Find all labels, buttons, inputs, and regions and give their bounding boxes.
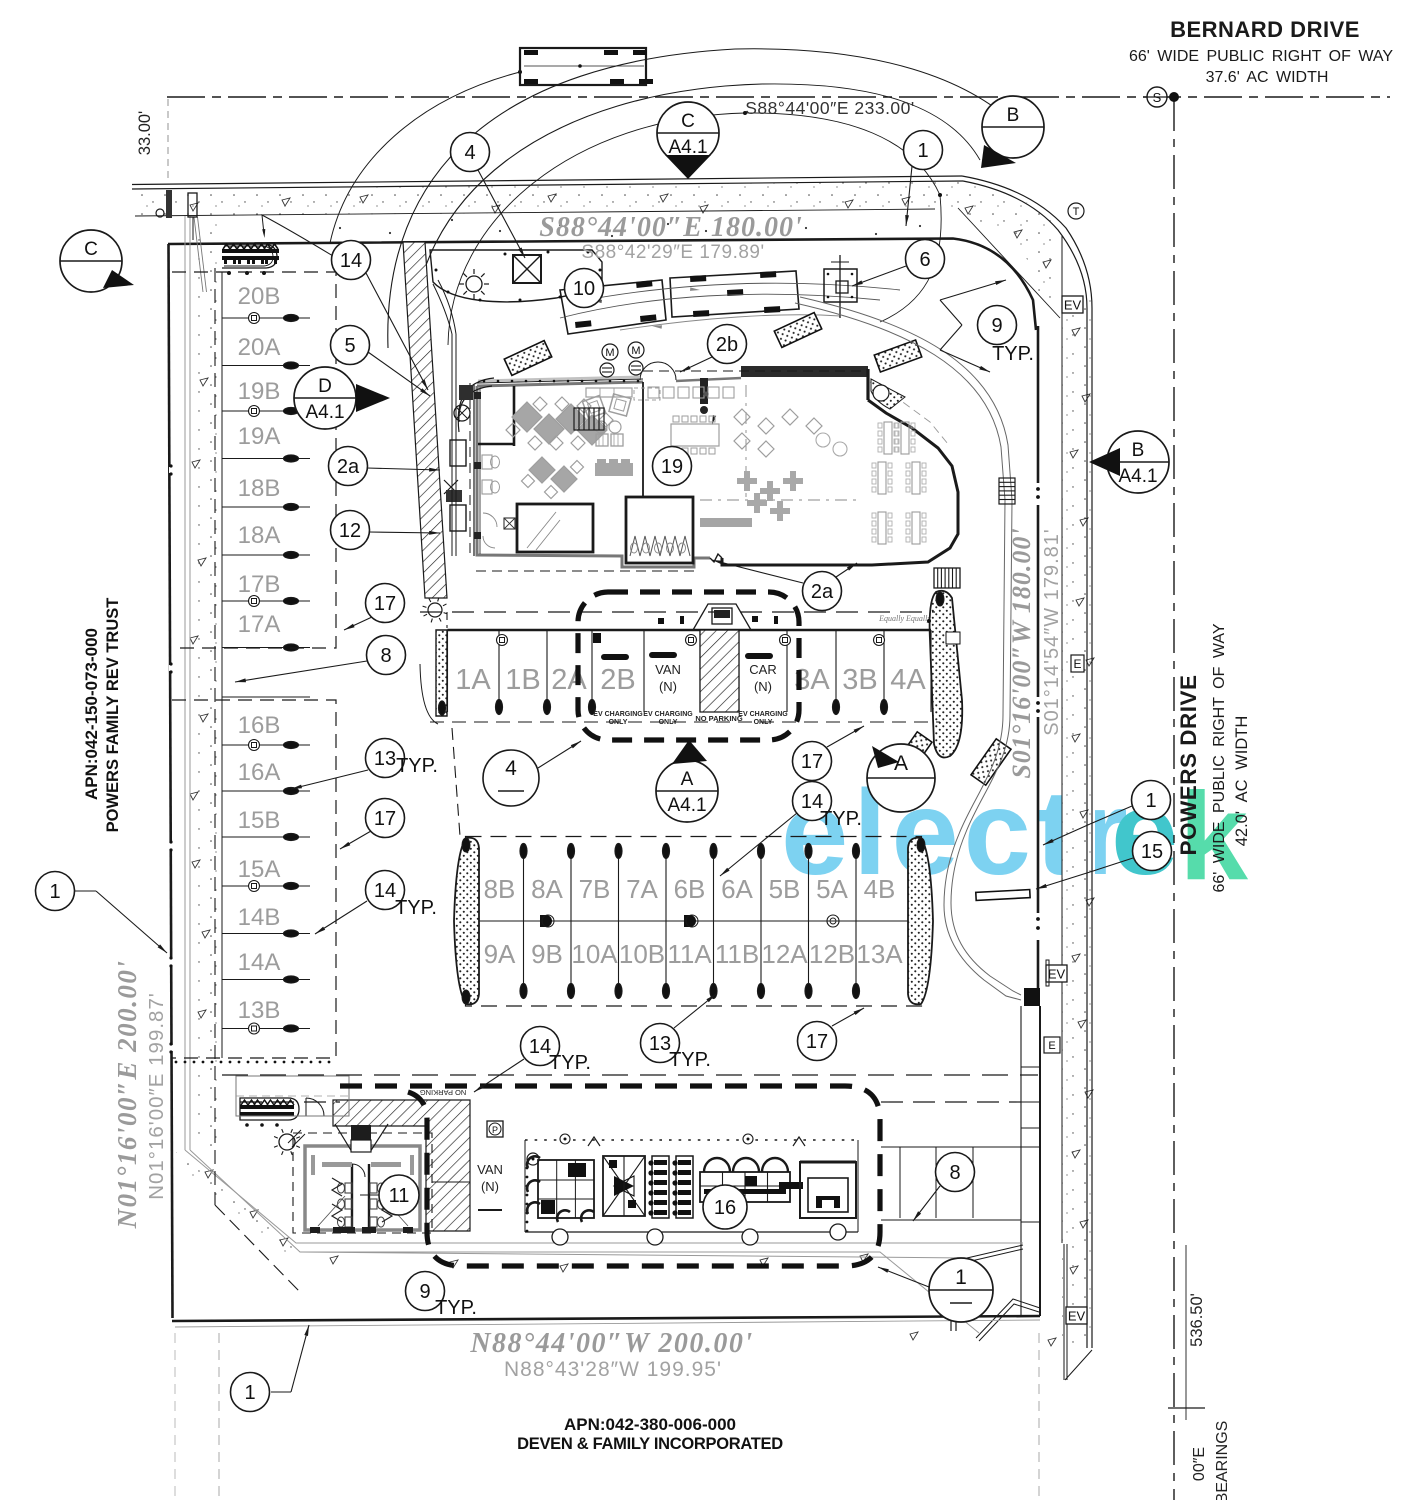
svg-text:14: 14 [374, 880, 396, 902]
svg-text:EV CHARGING: EV CHARGING [738, 711, 788, 718]
svg-text:13: 13 [649, 1033, 671, 1055]
svg-text:EV: EV [1048, 967, 1066, 982]
svg-text:10B: 10B [619, 939, 665, 969]
svg-text:TYP.: TYP. [435, 1297, 477, 1319]
svg-text:18A: 18A [238, 522, 281, 549]
svg-text:N01°16'00″E 200.00': N01°16'00″E 200.00' [112, 960, 142, 1230]
svg-text:TYP.: TYP. [820, 808, 862, 830]
svg-text:11: 11 [389, 1185, 410, 1207]
svg-text:1: 1 [955, 1266, 967, 1289]
svg-text:16: 16 [714, 1197, 736, 1219]
svg-text:13: 13 [374, 748, 396, 770]
svg-text:TYP.: TYP. [396, 755, 438, 777]
svg-text:5A: 5A [816, 874, 848, 904]
svg-text:6B: 6B [674, 874, 706, 904]
svg-text:APN:042-380-006-000: APN:042-380-006-000 [564, 1415, 736, 1434]
svg-text:10A: 10A [571, 939, 618, 969]
svg-text:NO PARKING: NO PARKING [695, 714, 743, 723]
svg-text:14A: 14A [238, 949, 281, 976]
svg-text:13A: 13A [856, 939, 903, 969]
svg-text:18B: 18B [238, 475, 281, 502]
svg-text:DEVEN & FAMILY INCORPORATED: DEVEN & FAMILY INCORPORATED [517, 1435, 783, 1453]
svg-text:T: T [1073, 206, 1080, 218]
svg-text:15: 15 [1141, 841, 1163, 863]
svg-text:CAR: CAR [749, 662, 776, 677]
svg-text:10: 10 [573, 278, 595, 300]
svg-text:(N): (N) [659, 679, 677, 694]
svg-text:8B: 8B [484, 874, 516, 904]
svg-text:A: A [681, 769, 694, 790]
svg-text:536.50': 536.50' [1188, 1293, 1206, 1347]
svg-text:1A: 1A [455, 664, 491, 696]
svg-text:1: 1 [244, 1382, 255, 1404]
svg-text:33.00': 33.00' [136, 111, 154, 155]
svg-text:TYP.: TYP. [395, 897, 437, 919]
svg-text:EV CHARGING: EV CHARGING [593, 711, 643, 718]
svg-text:14B: 14B [238, 904, 281, 931]
svg-text:13B: 13B [238, 997, 281, 1024]
svg-text:12: 12 [339, 520, 361, 542]
svg-text:8A: 8A [531, 874, 563, 904]
svg-text:4: 4 [464, 142, 475, 164]
svg-text:(N): (N) [481, 1179, 499, 1194]
svg-text:7B: 7B [579, 874, 611, 904]
svg-text:Equally Equally: Equally Equally [878, 614, 931, 623]
svg-text:APN:042-150-073-000: APN:042-150-073-000 [82, 628, 101, 800]
svg-text:6: 6 [919, 249, 930, 271]
svg-text:E: E [1048, 1040, 1055, 1052]
svg-text:TYP.: TYP. [549, 1052, 591, 1074]
svg-text:17: 17 [374, 808, 396, 830]
svg-text:A: A [894, 752, 908, 775]
svg-text:E: E [1073, 657, 1081, 671]
svg-text:19: 19 [661, 456, 683, 478]
svg-text:14: 14 [340, 250, 362, 272]
svg-text:17A: 17A [238, 611, 281, 638]
svg-text:ONLY: ONLY [659, 719, 678, 726]
svg-text:4A: 4A [890, 664, 926, 696]
svg-text:VAN: VAN [655, 662, 681, 677]
svg-text:9A: 9A [484, 939, 516, 969]
svg-text:N88°44'00″W 200.00': N88°44'00″W 200.00' [469, 1328, 753, 1359]
svg-text:66' WIDE PUBLIC RIGHT OF WAY: 66' WIDE PUBLIC RIGHT OF WAY [1129, 48, 1393, 65]
svg-text:17B: 17B [238, 571, 281, 598]
svg-text:POWERS FAMILY REV TRUST: POWERS FAMILY REV TRUST [104, 598, 122, 833]
svg-text:S88°42'29″E 179.89': S88°42'29″E 179.89' [581, 242, 764, 263]
svg-text:19A: 19A [238, 423, 281, 450]
svg-text:M: M [631, 345, 640, 357]
svg-text:EV: EV [1064, 298, 1082, 313]
svg-text:20B: 20B [238, 283, 281, 310]
svg-text:1: 1 [917, 140, 928, 162]
svg-text:2a: 2a [337, 456, 360, 478]
svg-text:S88°44'00″E 233.00': S88°44'00″E 233.00' [745, 98, 915, 118]
svg-text:17: 17 [801, 751, 823, 773]
svg-text:19B: 19B [238, 378, 281, 405]
svg-text:S88°44'00″E 180.00': S88°44'00″E 180.00' [539, 212, 802, 243]
svg-text:8: 8 [380, 645, 391, 667]
svg-text:A4.1: A4.1 [305, 402, 344, 423]
svg-text:9: 9 [991, 315, 1002, 337]
svg-text:VAN: VAN [477, 1162, 503, 1177]
svg-text:2A: 2A [551, 664, 587, 696]
svg-text:NO PARKING: NO PARKING [420, 1088, 467, 1097]
svg-text:5B: 5B [769, 874, 801, 904]
svg-text:1: 1 [49, 881, 60, 903]
svg-text:17: 17 [374, 593, 396, 615]
svg-text:S01°14'54″W 179.81': S01°14'54″W 179.81' [1041, 528, 1063, 735]
svg-text:C: C [84, 239, 98, 260]
svg-text:37.6' AC WIDTH: 37.6' AC WIDTH [1206, 69, 1329, 86]
svg-text:42.0' AC WIDTH: 42.0' AC WIDTH [1233, 716, 1251, 847]
svg-text:15A: 15A [238, 856, 281, 883]
svg-text:12B: 12B [809, 939, 855, 969]
svg-text:2b: 2b [716, 334, 738, 356]
svg-text:1: 1 [1145, 790, 1156, 812]
svg-text:N01°16'00″E 199.87': N01°16'00″E 199.87' [145, 992, 168, 1200]
svg-text:17: 17 [806, 1031, 828, 1053]
svg-text:B: B [1132, 440, 1145, 461]
svg-text:A4.1: A4.1 [668, 137, 707, 158]
svg-text:1B: 1B [505, 664, 540, 696]
svg-text:6A: 6A [721, 874, 753, 904]
svg-text:9: 9 [419, 1281, 430, 1303]
svg-text:8: 8 [949, 1162, 960, 1184]
svg-text:16A: 16A [238, 759, 281, 786]
svg-text:ONLY: ONLY [609, 719, 628, 726]
svg-text:N88°43'28″W 199.95': N88°43'28″W 199.95' [504, 1358, 722, 1381]
svg-text:TYP.: TYP. [992, 343, 1034, 365]
svg-text:BERNARD DRIVE: BERNARD DRIVE [1170, 17, 1360, 42]
svg-text:A4.1: A4.1 [667, 795, 706, 816]
svg-text:M: M [605, 347, 614, 359]
svg-text:20A: 20A [238, 334, 281, 361]
svg-text:A4.1: A4.1 [1118, 466, 1157, 487]
svg-text:4: 4 [505, 757, 517, 780]
svg-text:ONLY: ONLY [754, 719, 773, 726]
svg-text:P: P [492, 1125, 498, 1135]
svg-text:B: B [1007, 105, 1020, 126]
svg-text:14: 14 [529, 1036, 551, 1058]
svg-text:3B: 3B [842, 664, 877, 696]
svg-text:EV: EV [1068, 1309, 1086, 1324]
svg-text:7A: 7A [626, 874, 658, 904]
svg-text:12A: 12A [761, 939, 808, 969]
svg-text:11A: 11A [667, 939, 712, 969]
svg-text:BEARINGS: BEARINGS [1214, 1421, 1231, 1500]
svg-text:2a: 2a [811, 581, 834, 603]
svg-text:2B: 2B [600, 664, 635, 696]
svg-text:S01°16'00″W 180.00': S01°16'00″W 180.00' [1007, 527, 1036, 778]
svg-text:16B: 16B [238, 712, 281, 739]
svg-text:EV CHARGING: EV CHARGING [643, 711, 693, 718]
svg-text:11B: 11B [715, 939, 759, 969]
svg-text:00″E: 00″E [1191, 1447, 1208, 1481]
svg-text:4B: 4B [864, 874, 896, 904]
svg-text:5: 5 [344, 335, 355, 357]
svg-text:15B: 15B [238, 807, 281, 834]
svg-text:C: C [681, 111, 695, 132]
svg-text:9B: 9B [531, 939, 563, 969]
svg-text:TYP.: TYP. [669, 1049, 711, 1071]
svg-text:D: D [318, 376, 332, 397]
svg-text:(N): (N) [754, 679, 772, 694]
svg-text:66' WIDE PUBLIC RIGHT OF WAY: 66' WIDE PUBLIC RIGHT OF WAY [1211, 623, 1228, 892]
svg-text:POWERS DRIVE: POWERS DRIVE [1176, 674, 1201, 855]
